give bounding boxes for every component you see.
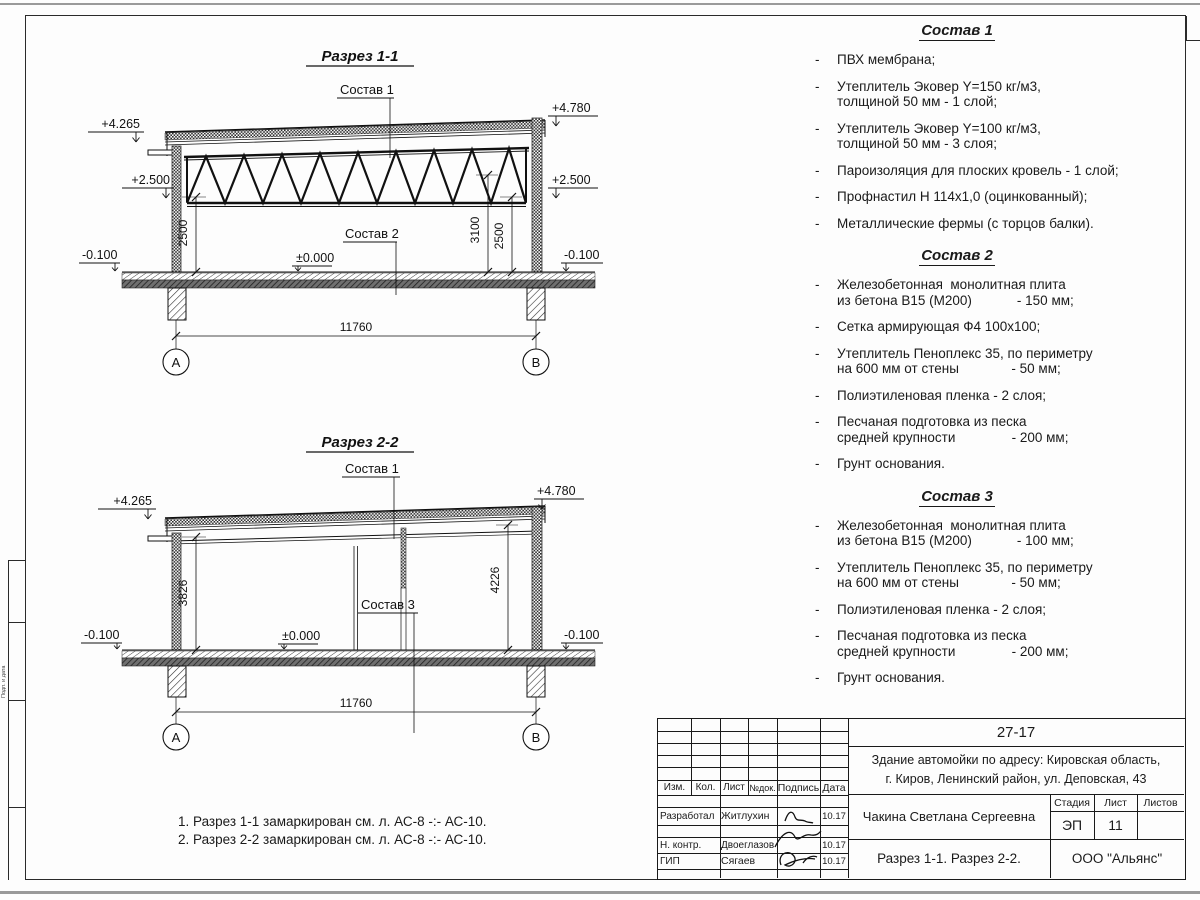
list-item: -Профнастил Н 114х1,0 (оцинкованный); — [812, 189, 1184, 205]
tb-date-3: 10.17 — [820, 853, 848, 869]
roof-truss — [184, 148, 529, 207]
section-2-2-drawing: Разрез 2-2 +4.265 +4 — [60, 425, 660, 790]
sheet-bottom-edge — [0, 891, 1200, 894]
margin-strip-divider — [8, 560, 25, 561]
callout-sostav1: Состав 1 — [345, 461, 399, 476]
tb-stage-value: ЭП — [1050, 811, 1094, 839]
canopy-plate — [148, 536, 175, 541]
right-wall — [532, 118, 542, 272]
margin-strip-label: Подп. и дата — [1, 622, 7, 698]
tb-sheets-label: Листов — [1137, 794, 1184, 811]
notes: 1. Разрез 1-1 замаркирован см. л. АС-8 -… — [178, 813, 487, 849]
tb-date-1: 10.17 — [820, 807, 848, 825]
list-item: -Песчаная подготовка из песка средней кр… — [812, 628, 1184, 659]
margin-strip-divider — [8, 807, 25, 808]
signature-3 — [773, 847, 821, 873]
list-item: -Грунт основания. — [812, 670, 1184, 686]
tb-stage-label: Стадия — [1050, 794, 1094, 811]
canopy-plate — [148, 150, 175, 155]
tb-sheet-value: 11 — [1094, 811, 1137, 839]
list-item: -Утеплитель Пеноплекс 35, по периметру н… — [812, 346, 1184, 377]
tb-date-2: 10.17 — [820, 837, 848, 853]
tb-drawing-title: Разрез 1-1. Разрез 2-2. — [848, 839, 1050, 878]
dim-mid-height: 3100 — [468, 216, 482, 243]
tb-col-list: Лист — [720, 780, 748, 795]
tb-name-gip: Сягаев — [721, 853, 777, 869]
elev-left-low: -0.100 — [84, 628, 119, 642]
list-item: -Пароизоляция для плоских кровель - 1 сл… — [812, 163, 1184, 179]
list-item: -Грунт основания. — [812, 456, 1184, 472]
vertical-dimensions: 3826 4226 — [176, 521, 518, 654]
dim-span: 11760 — [340, 696, 373, 710]
right-wall — [532, 507, 542, 650]
foundation-pier-left — [168, 288, 186, 320]
tb-sheets-value — [1137, 811, 1184, 839]
dim-right-height: 4226 — [488, 566, 502, 593]
tb-name-ncontrol: Двоеглазов — [721, 837, 777, 853]
elev-right-top: +4.780 — [552, 101, 591, 115]
floor-screed-hatch — [122, 651, 595, 658]
list-item: -Утеплитель Эковер Y=150 кг/м3, толщиной… — [812, 79, 1184, 110]
list-item: -Песчаная подготовка из песка средней кр… — [812, 414, 1184, 445]
floor-slab — [122, 658, 595, 666]
list-item: -Полиэтиленовая пленка - 2 слоя; — [812, 602, 1184, 618]
drawing-sheet: Подп. и дата Разрез 1-1 — [0, 0, 1200, 900]
list-item: -Железобетонная монолитная плита из бето… — [812, 277, 1184, 308]
list-item: -Утеплитель Эковер Y=100 кг/м3, толщиной… — [812, 121, 1184, 152]
margin-strip-divider — [8, 700, 25, 701]
span-dimension: 11760 — [172, 696, 540, 724]
axis-label-a: А — [172, 355, 181, 370]
tb-col-ndok: №док. — [748, 780, 777, 795]
list-item: -ПВХ мембрана; — [812, 52, 1184, 68]
elev-left-top: +4.265 — [101, 117, 140, 131]
foundation-pier-left — [168, 666, 186, 697]
elev-zero: ±0.000 — [296, 251, 334, 265]
section2-title: Разрез 2-2 — [321, 434, 399, 451]
elev-left-low: -0.100 — [82, 248, 117, 262]
list-item: -Металлические фермы (с торцов балки). — [812, 216, 1184, 232]
partition-insulated — [401, 528, 406, 588]
tb-role-developed: Разработал — [660, 807, 720, 825]
callout-sostav1: Состав 1 — [340, 82, 394, 97]
title-block: Изм. Кол. Лист №док. Подпись Дата Разраб… — [657, 718, 1186, 880]
floor-screed-hatch — [122, 273, 595, 280]
elev-left-mid: +2.500 — [131, 173, 170, 187]
tb-col-izm: Изм. — [658, 780, 691, 795]
tb-col-podpis: Подпись — [777, 780, 820, 795]
list-item: -Полиэтиленовая пленка - 2 слоя; — [812, 388, 1184, 404]
tb-project-name: Здание автомойки по адресу: Кировская об… — [848, 748, 1184, 792]
left-wall — [172, 146, 181, 272]
tb-role-ncontrol: Н. контр. — [660, 837, 720, 853]
elev-right-low: -0.100 — [564, 248, 599, 262]
comp2-title: Состав 2 — [812, 247, 1102, 264]
tb-col-kol: Кол. — [691, 780, 720, 795]
signature-1 — [779, 805, 819, 827]
elev-right-mid: +2.500 — [552, 173, 591, 187]
elev-right-top: +4.780 — [537, 484, 576, 498]
list-item: -Сетка армирующая Ф4 100х100; — [812, 319, 1184, 335]
foundation-pier-right — [527, 666, 545, 697]
margin-strip-line — [8, 560, 9, 880]
tb-project-code: 27-17 — [848, 719, 1184, 746]
elev-right-low: -0.100 — [564, 628, 599, 642]
margin-strip-divider — [8, 622, 25, 623]
note-line-1: 1. Разрез 1-1 замаркирован см. л. АС-8 -… — [178, 813, 487, 831]
tb-sheet-label: Лист — [1094, 794, 1137, 811]
dim-left-height: 3826 — [176, 579, 190, 606]
dim-right-height: 2500 — [492, 222, 506, 249]
foundation-pier-right — [527, 288, 545, 320]
tb-col-data: Дата — [820, 780, 848, 795]
axis-label-b: В — [532, 730, 541, 745]
tb-role-gip: ГИП — [660, 853, 720, 869]
dim-span: 11760 — [340, 320, 373, 334]
comp3-title: Состав 3 — [812, 488, 1102, 505]
floor-slab — [122, 280, 595, 288]
tb-name-developed: Житлухин — [721, 807, 777, 825]
list-item: -Утеплитель Пеноплекс 35, по периметру н… — [812, 560, 1184, 591]
note-line-2: 2. Разрез 2-2 замаркирован см. л. АС-8 -… — [178, 831, 487, 849]
axis-label-a: А — [172, 730, 181, 745]
comp1-title: Состав 1 — [812, 22, 1102, 39]
list-item: -Железобетонная монолитная плита из бето… — [812, 518, 1184, 549]
callout-sostav3: Состав 3 — [361, 597, 415, 612]
section1-title: Разрез 1-1 — [321, 48, 398, 65]
span-dimension: 11760 — [172, 320, 540, 349]
tb-company: ООО "Альянс" — [1050, 839, 1184, 878]
elev-zero: ±0.000 — [282, 629, 320, 643]
dim-left-height: 2500 — [176, 219, 190, 246]
callout-sostav2: Состав 2 — [345, 226, 399, 241]
elev-left-top: +4.265 — [113, 494, 152, 508]
tb-author: Чакина Светлана Сергеевна — [848, 794, 1050, 839]
vertical-dimensions: 2500 3100 2500 — [176, 171, 522, 276]
sheet-top-edge — [0, 3, 1200, 5]
compositions-panel: Состав 1 -ПВХ мембрана; -Утеплитель Эков… — [812, 22, 1184, 697]
axis-label-b: В — [532, 355, 541, 370]
section-1-1-drawing: Разрез 1-1 +4.265 — [60, 40, 660, 412]
corner-code-box — [1186, 16, 1200, 41]
